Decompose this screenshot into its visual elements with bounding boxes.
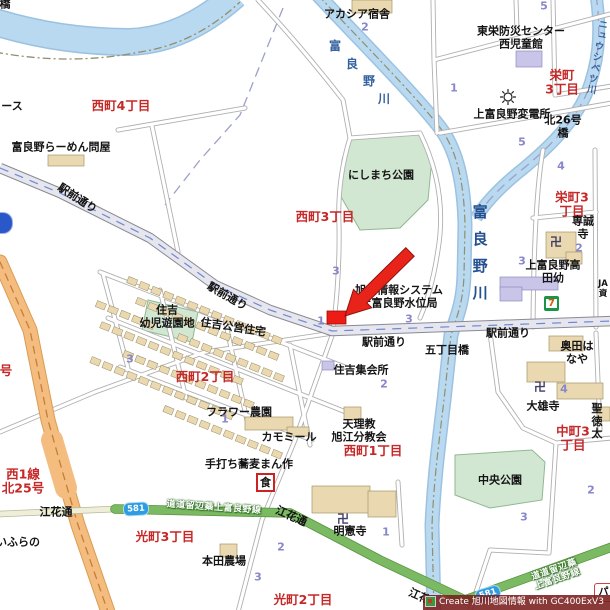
poi-label-acacia-dormitory: アカシア宿舎 [324,9,390,22]
meikenji-hall-building [368,491,396,517]
meikenji-temple-building [312,486,370,513]
temple-manji-icon: 卍 [534,381,546,395]
block-number: 2 [587,485,595,498]
map-screenshot: { "labels": { "d_nishi4": "西町4丁目", "d_ni… [0,0,610,610]
poi-label-tenrikyo-church: 天理教 旭江分教会 [332,418,387,443]
poi-label-chuo-park: 中央公園 [478,475,522,488]
district-label-nishimachi-3: 西町3丁目 [296,210,355,224]
poi-label-water-level-station: 旭川情報システム 上富良野水位局 [355,284,443,309]
district-label-hikarimachi-2: 光町2丁目 [274,593,333,607]
route-shield-581: 581 [123,501,150,516]
district-label-nakamachi-3: 中町3丁目 [555,425,592,454]
poi-label-sumiyoshi-playground: 住吉 幼児遊園地 [140,304,195,329]
block-number: 3 [254,572,262,585]
poi-label-senseiji-temple: 専誠寺 [570,215,597,240]
poi-label-partial-su: ース [1,101,22,114]
district-label-sakaemachi-3-top: 栄町 3丁目 [545,69,579,98]
poi-label-daiyuji-temple: 大雄寺 [527,401,560,414]
poi-label-soba-mansaku: 手打ち蕎麦まん作 [205,459,293,472]
block-number: 2 [361,22,369,35]
block-number: 2 [380,379,388,392]
temple-manji-icon: 卍 [550,236,562,250]
block-number: 1 [317,316,325,329]
block-number: 4 [560,384,568,397]
watermark-bar: Create 旭川地図情報 with GC400ExV3 [423,595,610,610]
poi-label-sumiyoshi-meeting-hall: 住吉集会所 [334,365,389,378]
convenience-store-icon: 7 [544,296,559,311]
takada-kindergarten-wing [500,287,522,301]
watermark-logo-icon [425,596,436,607]
district-label-hikarimachi-3: 光町3丁目 [136,530,195,544]
district-label-nishi1sen-kita25: 西1線 北25号 [2,468,44,497]
poi-label-meikenji-temple: 明憲寺 [334,526,367,539]
poi-label-kita26-bridge: 北26号橋 [540,114,587,139]
block-number: 3 [405,314,413,327]
road-label-ekimae-dori-center: 駅前通り [362,337,406,350]
daiyuji-temple-building [527,362,565,382]
district-label-nishimachi-1: 西町1丁目 [344,444,403,458]
district-label-nishimachi-2: 西町2丁目 [176,370,235,384]
block-number: 2 [575,243,583,256]
district-label-nishimachi-4: 西町4丁目 [92,99,151,113]
orange-road-junction-widening [52,440,66,488]
temple-manji-icon: 卍 [337,513,349,527]
block-number: 3 [518,256,526,269]
poi-label-partial-hashi: 橋 [0,0,11,11]
block-number: 3 [332,266,340,279]
poi-label-partial-ja: JA 資 [598,280,608,300]
restaurant-icon: 食 [256,473,275,492]
river-label-furano-char2: 良 [346,58,358,72]
poi-label-disaster-center: 東栄防災センター 西児童館 [477,25,565,50]
poi-label-okuda-hanaya: 奥田はなや [561,340,594,365]
river-label-furano-large: 富良野川 [470,204,487,312]
river-label-furano-char1: 富 [329,40,341,54]
poi-label-partial-furano: いふらの [0,537,40,550]
block-number: 1 [221,414,229,427]
block-number: 5 [540,1,548,14]
block-number: 3 [520,512,528,525]
poi-label-camomile: カモミール [262,432,317,445]
poi-label-flower-farm: フラワー農園 [206,407,272,420]
seven-eleven-glyph: 7 [546,299,557,308]
river-label-furano-char4: 川 [378,93,390,107]
poi-label-ramen-shop: 富良野らーめん問屋 [12,142,111,155]
watermark-text: Create 旭川地図情報 with GC400ExV3 [439,597,604,607]
poi-label-nishimachi-park: にしまち公園 [348,170,414,183]
district-label-partial-go: 号 [0,364,12,378]
ramen-shop-building [48,155,84,166]
block-number: 2 [277,542,285,555]
block-number: 5 [518,137,526,150]
block-number: 3 [126,354,134,367]
road-label-ekimae-dori-east: 駅前通り [486,328,530,341]
poi-label-takada-kindergarten: 上富良野高田幼 [525,259,582,284]
poi-label-honda-farm: 本田農場 [202,556,246,569]
block-number: 4 [557,161,565,174]
sumiyoshi-meeting-hall-building [322,361,334,370]
road-label-ebana-dori-west: 江花通 [40,507,73,520]
block-number: 1 [382,527,390,540]
block-number: 1 [450,83,458,96]
poi-label-gochome-bridge: 五丁目橋 [425,345,469,358]
poi-label-partial-shotoku: 聖徳太 [591,403,604,441]
river-label-furano-char3: 野 [363,75,375,89]
west-childrens-hall-building [516,51,542,67]
